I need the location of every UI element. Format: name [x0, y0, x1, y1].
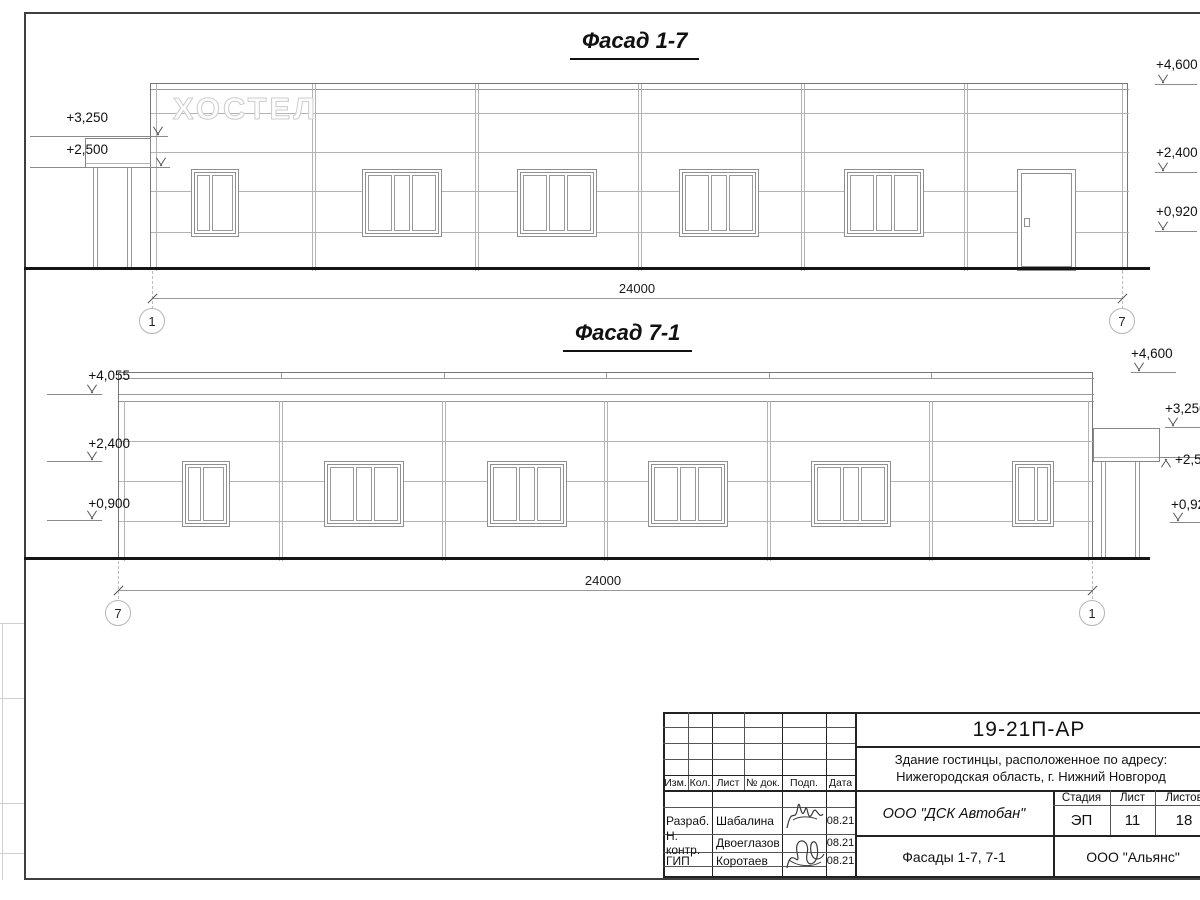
- blueprint-sheet: Фасад 1-7 ХОСТЕЛ: [0, 0, 1200, 900]
- window-pane: [698, 467, 722, 521]
- signature: [783, 796, 825, 834]
- level-arrow-icon: [1133, 363, 1145, 372]
- level-leader: [1131, 372, 1176, 373]
- level-arrow-icon: [1157, 163, 1169, 172]
- window-pane: [493, 467, 517, 521]
- level-mark: +2,400: [1156, 145, 1198, 160]
- canopy-column: [127, 168, 132, 268]
- window: [679, 169, 759, 237]
- extension-line: [1092, 561, 1093, 599]
- window-pane: [894, 175, 918, 231]
- facade-7-1-drawing: [118, 372, 1093, 560]
- level-mark: +3,250: [28, 110, 108, 125]
- entrance-door: [1017, 169, 1076, 271]
- window: [648, 461, 728, 527]
- window: [324, 461, 404, 527]
- window-frame: [1015, 464, 1051, 524]
- level-arrow-icon: [1172, 513, 1184, 522]
- window-pane: [356, 467, 372, 521]
- window-pane: [188, 467, 201, 521]
- tb-line: [663, 759, 855, 760]
- parapet-tick: [444, 373, 445, 378]
- title-block: 19-21П-АР Здание гостинцы, расположенное…: [663, 712, 1200, 878]
- tb-line: [712, 712, 713, 878]
- margin-table-line: [0, 803, 24, 804]
- canopy-column: [1101, 462, 1106, 558]
- window-pane: [519, 467, 535, 521]
- row-date: 08.21: [826, 852, 855, 870]
- door-leaf: [1021, 173, 1072, 267]
- level-leader: [47, 520, 102, 521]
- panel-joint: [279, 401, 283, 561]
- axis-marker-7: 7: [105, 600, 131, 626]
- window: [487, 461, 567, 527]
- window-pane: [876, 175, 892, 231]
- door-handle: [1024, 218, 1030, 227]
- row-name: Шабалина: [716, 807, 782, 834]
- extension-line: [152, 271, 153, 309]
- window-pane: [711, 175, 727, 231]
- window-pane: [549, 175, 565, 231]
- window-pane: [729, 175, 753, 231]
- margin-table-line: [0, 698, 24, 699]
- window-pane: [330, 467, 354, 521]
- window-pane: [654, 467, 678, 521]
- window-pane: [1037, 467, 1048, 521]
- window-frame: [682, 172, 756, 234]
- window: [517, 169, 597, 237]
- window-pane: [537, 467, 561, 521]
- row-name: Коротаев: [716, 852, 782, 870]
- level-leader: [30, 167, 170, 168]
- parapet-tick: [281, 373, 282, 378]
- sheets-value: 18: [1155, 807, 1200, 834]
- window-pane: [567, 175, 591, 231]
- col-header-doc: № док.: [744, 775, 782, 790]
- signature: [781, 832, 827, 876]
- window: [1012, 461, 1054, 527]
- level-leader: [1170, 522, 1200, 523]
- sheet-value: 11: [1110, 807, 1155, 834]
- sheet-frame-top: [24, 12, 1200, 14]
- col-header-sign: Подп.: [782, 775, 826, 790]
- col-header-izm: Изм.: [663, 775, 688, 790]
- parapet-tick: [606, 373, 607, 378]
- ground-line: [24, 557, 1150, 560]
- dimension-label: 24000: [518, 573, 688, 588]
- axis-marker-1: 1: [1079, 600, 1105, 626]
- level-arrow-icon: [1157, 75, 1169, 84]
- hostel-sign: ХОСТЕЛ: [173, 91, 318, 127]
- window-pane: [374, 467, 398, 521]
- level-leader: [47, 461, 102, 462]
- col-header-kol: Кол.: [688, 775, 712, 790]
- facade-7-1-title: Фасад 7-1: [563, 320, 692, 352]
- window-frame: [651, 464, 725, 524]
- window-pane: [523, 175, 547, 231]
- level-arrow-icon: [86, 452, 98, 461]
- facade-1-7-title: Фасад 1-7: [570, 28, 699, 60]
- extension-line: [1122, 271, 1123, 309]
- window-pane: [1018, 467, 1035, 521]
- level-leader: [1155, 231, 1197, 232]
- level-arrow-icon: [86, 385, 98, 394]
- level-leader: [30, 136, 168, 137]
- row-date: 08.21: [826, 834, 855, 852]
- tb-border: [663, 876, 1200, 878]
- window-pane: [685, 175, 709, 231]
- col-header-date: Дата: [826, 775, 855, 790]
- edge-joint: [1088, 401, 1089, 561]
- canopy-column: [1135, 462, 1140, 558]
- window-pane: [861, 467, 885, 521]
- edge-joint: [156, 84, 157, 271]
- margin-table-line: [0, 853, 24, 854]
- window-pane: [197, 175, 210, 231]
- sheet-label: Лист: [1110, 791, 1155, 805]
- level-mark: +0,920: [1156, 204, 1198, 219]
- level-leader: [1155, 172, 1197, 173]
- sheet-frame-left: [24, 12, 26, 880]
- window: [182, 461, 230, 527]
- margin-table-line: [2, 623, 3, 880]
- level-mark: +2,500: [1175, 452, 1200, 467]
- row-role: Н. контр.: [666, 834, 712, 852]
- window-pane: [843, 467, 859, 521]
- level-leader: [47, 394, 102, 395]
- edge-joint: [124, 401, 125, 561]
- col-header-list: Лист: [712, 775, 744, 790]
- row-date: 08.21: [826, 807, 855, 834]
- level-mark: +2,500: [28, 142, 108, 157]
- dimension-label: 24000: [552, 281, 722, 296]
- dimension-line: [152, 298, 1122, 299]
- project-description-line2: Нижегородская область, г. Нижний Новгоро…: [859, 767, 1200, 786]
- window: [811, 461, 891, 527]
- sheets-label: Листов: [1155, 791, 1200, 805]
- facade-1-7-drawing: ХОСТЕЛ: [150, 83, 1128, 270]
- panel-joint: [767, 401, 771, 561]
- level-leader: [1165, 427, 1200, 428]
- tb-line: [663, 743, 855, 744]
- window-pane: [850, 175, 874, 231]
- window-frame: [814, 464, 888, 524]
- level-leader: [1155, 84, 1197, 85]
- window-frame: [194, 172, 236, 234]
- parapet-tick: [931, 373, 932, 378]
- extension-line: [118, 561, 119, 599]
- stage-label: Стадия: [1053, 791, 1110, 805]
- level-arrow-icon: [1160, 458, 1172, 467]
- tb-line: [1053, 805, 1200, 806]
- panel-joint: [475, 84, 479, 271]
- window-frame: [327, 464, 401, 524]
- level-arrow-icon: [1167, 418, 1179, 427]
- ground-line: [24, 267, 1150, 270]
- window-frame: [847, 172, 921, 234]
- window: [844, 169, 924, 237]
- canopy-column: [93, 168, 98, 268]
- axis-marker-1: 1: [139, 308, 165, 334]
- design-company: ООО "ДСК Автобан": [855, 792, 1053, 835]
- panel-joint: [964, 84, 968, 271]
- panel-joint: [604, 401, 608, 561]
- window-pane: [680, 467, 696, 521]
- level-mark: +4,055: [45, 368, 130, 383]
- window-frame: [520, 172, 594, 234]
- tb-border: [663, 712, 665, 878]
- window-frame: [365, 172, 439, 234]
- canopy-edge-line: [86, 163, 150, 164]
- panel-joint: [638, 84, 642, 271]
- drawing-title: Фасады 1-7, 7-1: [855, 837, 1053, 876]
- canopy-edge-line: [1094, 457, 1159, 458]
- document-code: 19-21П-АР: [855, 715, 1200, 745]
- level-arrow-icon: [152, 127, 164, 136]
- window-frame: [185, 464, 227, 524]
- level-mark: +4,600: [1131, 346, 1173, 361]
- window-pane: [412, 175, 436, 231]
- axis-marker-7: 7: [1109, 308, 1135, 334]
- window-pane: [212, 175, 233, 231]
- window-pane: [394, 175, 410, 231]
- tb-line: [855, 746, 1200, 748]
- sheet-frame-bottom: [24, 878, 1200, 880]
- parapet-tick: [769, 373, 770, 378]
- tb-line: [663, 727, 855, 728]
- panel-joint: [801, 84, 805, 271]
- level-mark: +4,600: [1156, 57, 1198, 72]
- fascia-line: [119, 394, 1094, 395]
- level-mark: +0,920: [1171, 497, 1200, 512]
- window: [191, 169, 239, 237]
- window-pane: [368, 175, 392, 231]
- row-role: ГИП: [666, 852, 712, 870]
- level-mark: +2,400: [45, 436, 130, 451]
- panel-joint: [929, 401, 933, 561]
- window-pane: [203, 467, 224, 521]
- level-arrow-icon: [155, 158, 167, 167]
- level-arrow-icon: [86, 511, 98, 520]
- entrance-canopy: [1093, 428, 1160, 462]
- contractor-company: ООО "Альянс": [1053, 837, 1200, 876]
- dimension-line: [118, 590, 1092, 591]
- edge-joint: [1122, 84, 1123, 271]
- panel-joint: [442, 401, 446, 561]
- window-pane: [817, 467, 841, 521]
- level-arrow-icon: [1157, 222, 1169, 231]
- row-name: Двоеглазов: [716, 834, 782, 852]
- level-mark: +0,900: [45, 496, 130, 511]
- parapet-line: [119, 378, 1094, 379]
- margin-table-line: [0, 623, 24, 624]
- level-mark: +3,250: [1165, 401, 1200, 416]
- stage-value: ЭП: [1053, 807, 1110, 834]
- window: [362, 169, 442, 237]
- window-frame: [490, 464, 564, 524]
